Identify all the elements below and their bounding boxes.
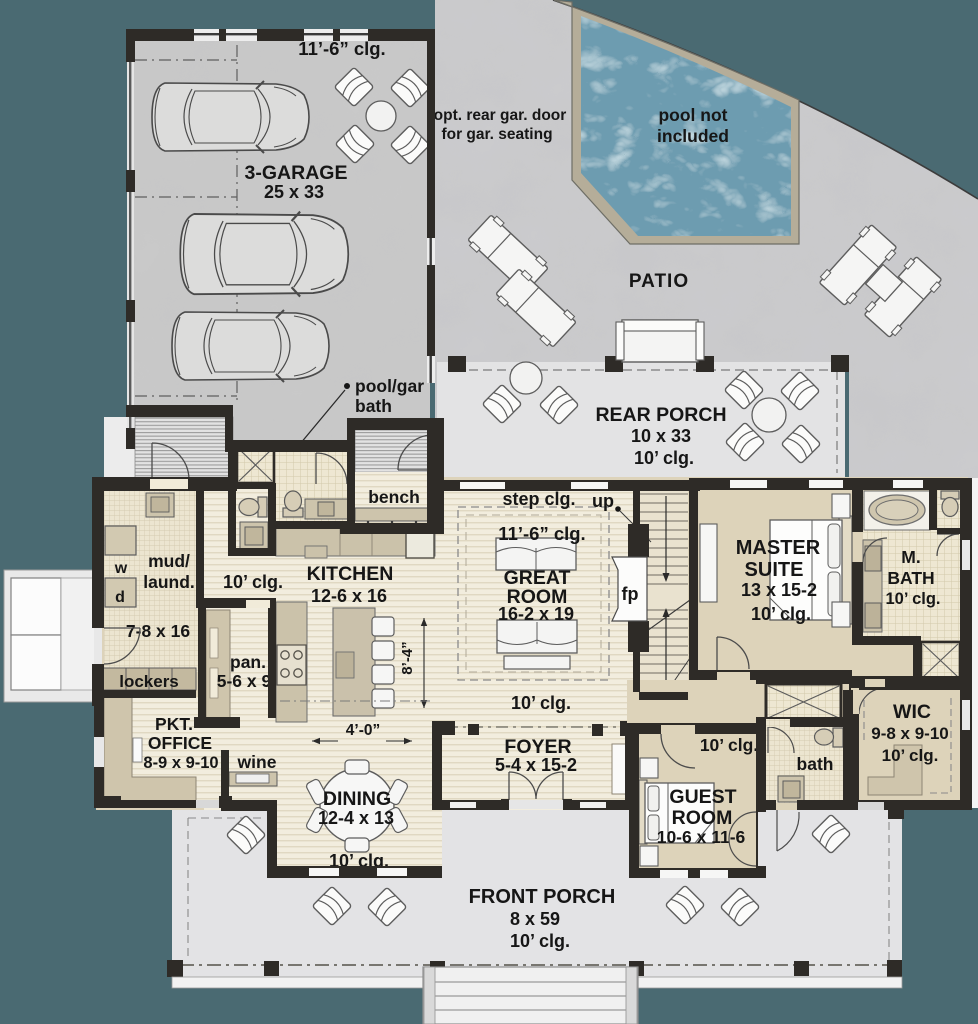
svg-text:bath: bath (797, 754, 834, 774)
svg-text:up: up (592, 491, 614, 511)
svg-text:10’ clg.: 10’ clg. (510, 931, 570, 951)
svg-text:10’ clg.: 10’ clg. (751, 604, 811, 624)
svg-text:10-6 x 11-6: 10-6 x 11-6 (657, 827, 746, 847)
svg-text:laund.: laund. (143, 572, 195, 592)
svg-text:mud/: mud/ (148, 551, 190, 571)
svg-text:w: w (114, 560, 128, 577)
svg-text:WIC: WIC (893, 701, 931, 723)
svg-text:12-6 x 16: 12-6 x 16 (311, 586, 387, 606)
svg-text:10’ clg.: 10’ clg. (634, 448, 694, 468)
svg-text:DINING: DINING (323, 788, 391, 810)
svg-text:4’-0”: 4’-0” (346, 722, 380, 739)
svg-text:MASTER: MASTER (736, 537, 821, 559)
svg-text:wine: wine (237, 752, 277, 772)
svg-text:11’-6” clg.: 11’-6” clg. (298, 38, 385, 59)
svg-text:fp: fp (622, 584, 639, 604)
svg-text:FRONT PORCH: FRONT PORCH (469, 886, 616, 908)
svg-text:10’ clg.: 10’ clg. (885, 590, 940, 608)
svg-text:included: included (657, 126, 729, 146)
svg-text:7-8 x 16: 7-8 x 16 (126, 621, 190, 641)
svg-text:step clg.: step clg. (502, 489, 575, 509)
svg-text:opt. rear gar. door: opt. rear gar. door (434, 107, 567, 124)
svg-text:pool not: pool not (658, 105, 727, 125)
svg-text:8’-4”: 8’-4” (399, 641, 416, 674)
svg-text:5-4 x 15-2: 5-4 x 15-2 (495, 755, 577, 775)
svg-text:ROOM: ROOM (672, 807, 733, 829)
svg-text:10’ clg.: 10’ clg. (882, 746, 939, 765)
svg-text:GUEST: GUEST (669, 786, 736, 808)
svg-text:pool/gar: pool/gar (355, 376, 424, 396)
svg-text:SUITE: SUITE (745, 559, 804, 581)
svg-text:BATH: BATH (887, 568, 934, 588)
svg-text:16-2 x 19: 16-2 x 19 (498, 604, 574, 624)
svg-text:10’ clg.: 10’ clg. (223, 572, 283, 592)
svg-text:PKT.: PKT. (155, 714, 193, 734)
svg-text:13 x 15-2: 13 x 15-2 (741, 580, 817, 600)
svg-text:OFFICE: OFFICE (148, 733, 212, 753)
svg-text:for gar. seating: for gar. seating (441, 126, 552, 143)
svg-text:8-9 x 9-10: 8-9 x 9-10 (143, 754, 218, 772)
svg-text:pan.: pan. (230, 652, 266, 672)
svg-text:bench: bench (368, 487, 420, 507)
svg-text:25 x 33: 25 x 33 (264, 182, 324, 202)
svg-text:12-4 x 13: 12-4 x 13 (318, 808, 394, 828)
svg-text:9-8 x 9-10: 9-8 x 9-10 (871, 724, 949, 743)
svg-text:10’ clg.: 10’ clg. (700, 735, 758, 755)
svg-text:d: d (115, 589, 125, 606)
svg-text:bath: bath (355, 396, 392, 416)
svg-text:M.: M. (901, 547, 920, 567)
svg-text:8 x 59: 8 x 59 (510, 909, 560, 929)
svg-text:PATIO: PATIO (629, 271, 689, 292)
svg-text:lockers: lockers (119, 672, 179, 691)
svg-text:10 x 33: 10 x 33 (631, 426, 691, 446)
svg-text:3-GARAGE: 3-GARAGE (245, 162, 348, 184)
svg-text:11’-6” clg.: 11’-6” clg. (498, 523, 585, 544)
svg-text:5-6 x 9: 5-6 x 9 (217, 671, 272, 691)
svg-text:KITCHEN: KITCHEN (307, 563, 394, 585)
svg-text:REAR PORCH: REAR PORCH (595, 404, 726, 426)
